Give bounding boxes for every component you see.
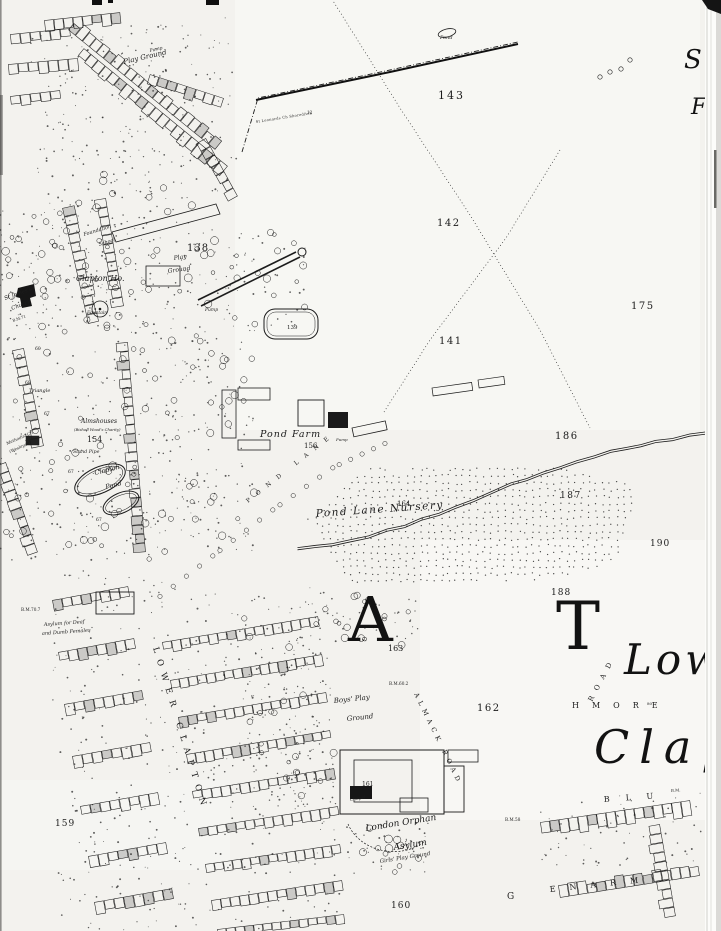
- stipple-dot: [80, 690, 82, 692]
- stipple-dot: [617, 815, 619, 817]
- nursery-dot: [357, 560, 358, 561]
- nursery-dot: [512, 489, 513, 490]
- nursery-dot: [553, 573, 554, 574]
- stipple-dot: [215, 485, 217, 487]
- stipple-dot: [414, 610, 415, 611]
- nursery-dot: [455, 491, 456, 492]
- nursery-dot: [485, 483, 486, 484]
- nursery-dot: [546, 567, 547, 568]
- spot-height-67a: 67: [44, 411, 50, 417]
- nursery-dot: [456, 484, 457, 485]
- stipple-dot: [40, 149, 42, 151]
- stipple-dot: [86, 514, 88, 516]
- nursery-dot: [406, 579, 407, 580]
- stipple-dot: [45, 288, 47, 290]
- stipple-dot: [121, 53, 122, 54]
- stipple-dot: [61, 227, 62, 228]
- nursery-dot: [384, 496, 385, 497]
- stipple-dot: [175, 282, 177, 284]
- stipple-dot: [52, 699, 53, 700]
- stipple-dot: [55, 667, 56, 668]
- stipple-dot: [241, 233, 242, 234]
- stipple-dot: [248, 325, 249, 326]
- stipple-dot: [290, 917, 291, 918]
- stipple-dot: [118, 266, 119, 267]
- nursery-dot: [604, 554, 605, 555]
- spot-height-80: 80: [647, 701, 653, 706]
- house: [135, 534, 144, 543]
- stipple-dot: [199, 680, 200, 681]
- stipple-dot: [333, 854, 335, 856]
- stipple-dot: [38, 172, 39, 173]
- stipple-dot: [191, 340, 192, 341]
- stipple-dot: [84, 685, 86, 687]
- stipple-dot: [282, 854, 283, 855]
- stipple-dot: [185, 327, 187, 329]
- nursery-dot: [602, 531, 603, 532]
- nursery-dot: [496, 503, 497, 504]
- stipple-dot: [105, 863, 106, 864]
- nursery-dot: [378, 546, 379, 547]
- stipple-dot: [332, 615, 333, 616]
- stipple-dot: [69, 878, 71, 880]
- stipple-dot: [541, 859, 542, 860]
- stipple-dot: [63, 114, 64, 115]
- stipple-dot: [320, 682, 321, 683]
- nursery-dot: [365, 519, 366, 520]
- stipple-dot: [296, 743, 298, 745]
- stipple-dot: [166, 404, 168, 406]
- nursery-dot: [358, 495, 359, 496]
- stipple-dot: [355, 833, 356, 834]
- stipple-dot: [135, 373, 137, 375]
- house: [77, 647, 88, 660]
- stipple-dot: [141, 239, 142, 240]
- stipple-dot: [179, 474, 180, 475]
- stipple-dot: [30, 557, 32, 559]
- stipple-dot: [26, 231, 28, 233]
- nursery-dot: [422, 469, 423, 470]
- stipple-dot: [190, 864, 191, 865]
- nursery-dot: [566, 525, 567, 526]
- nursery-dot: [400, 581, 401, 582]
- stipple-dot: [12, 301, 13, 302]
- stipple-dot: [571, 815, 572, 816]
- nursery-dot: [448, 482, 449, 483]
- nursery-dot: [364, 580, 365, 581]
- stipple-dot: [253, 748, 254, 749]
- stipple-dot: [312, 603, 313, 604]
- stipple-dot: [230, 643, 232, 645]
- stipple-dot: [10, 291, 11, 292]
- stipple-dot: [317, 853, 318, 854]
- nursery-dot: [461, 490, 462, 491]
- stipple-dot: [48, 423, 50, 425]
- nursery-dot: [553, 552, 554, 553]
- stipple-dot: [149, 241, 151, 243]
- stipple-dot: [243, 434, 245, 436]
- stipple-dot: [160, 717, 161, 718]
- stipple-dot: [279, 787, 281, 789]
- stipple-dot: [191, 64, 192, 65]
- nursery-dot: [545, 512, 546, 513]
- stipple-dot: [295, 808, 296, 809]
- nursery-dot: [595, 552, 596, 553]
- stipple-dot: [15, 253, 17, 255]
- spot-height-67b: 67: [68, 469, 74, 475]
- stipple-dot: [423, 862, 424, 863]
- nursery-dot: [590, 533, 591, 534]
- stipple-dot: [187, 35, 188, 36]
- stipple-dot: [135, 462, 136, 463]
- stipple-dot: [334, 829, 335, 830]
- nursery-dot: [365, 532, 366, 533]
- benchmark-58: B.M.58: [505, 817, 521, 822]
- stipple-dot: [39, 460, 41, 462]
- stipple-dot: [159, 287, 160, 288]
- nursery-dot: [401, 489, 402, 490]
- stipple-dot: [172, 887, 173, 888]
- nursery-dot: [554, 511, 555, 512]
- nursery-dot: [405, 531, 406, 532]
- stipple-dot: [299, 636, 301, 638]
- nursery-dot: [517, 476, 518, 477]
- stipple-dot: [154, 908, 155, 909]
- stipple-dot: [290, 872, 291, 873]
- stipple-dot: [213, 87, 214, 88]
- stipple-dot: [106, 301, 107, 302]
- nursery-dot: [420, 565, 421, 566]
- stipple-dot: [320, 652, 322, 654]
- stipple-dot: [195, 518, 196, 519]
- stipple-dot: [165, 26, 167, 28]
- house: [242, 667, 252, 678]
- stipple-dot: [197, 650, 199, 652]
- stipple-dot: [131, 33, 133, 35]
- nursery-dot: [421, 475, 422, 476]
- stipple-dot: [331, 797, 333, 799]
- nursery-dot: [553, 495, 554, 496]
- nursery-dot: [546, 532, 547, 533]
- stipple-dot: [124, 344, 125, 345]
- stipple-dot: [251, 600, 253, 602]
- stipple-dot: [139, 118, 141, 120]
- nursery-dot: [343, 559, 344, 560]
- nursery-dot: [371, 567, 372, 568]
- nursery-dot: [450, 538, 451, 539]
- nursery-dot: [573, 566, 574, 567]
- nursery-dot: [483, 476, 484, 477]
- stipple-dot: [146, 519, 147, 520]
- stipple-dot: [254, 330, 255, 331]
- stipple-dot: [160, 338, 162, 340]
- stipple-dot: [65, 82, 66, 83]
- nursery-dot: [485, 503, 486, 504]
- stipple-dot: [252, 697, 254, 699]
- nursery-dot: [505, 510, 506, 511]
- stipple-dot: [78, 471, 79, 472]
- stipple-dot: [229, 864, 231, 866]
- stipple-dot: [95, 351, 96, 352]
- nursery-dot: [477, 572, 478, 573]
- stipple-dot: [378, 837, 380, 839]
- nursery-dot: [464, 497, 465, 498]
- nursery-dot: [470, 573, 471, 574]
- stipple-dot: [159, 263, 160, 264]
- stipple-dot: [116, 605, 118, 607]
- stipple-dot: [235, 919, 236, 920]
- stipple-dot: [145, 704, 146, 705]
- stipple-dot: [176, 768, 178, 770]
- house: [124, 434, 136, 443]
- stipple-dot: [130, 537, 132, 539]
- nursery-dot: [392, 496, 393, 497]
- nursery-dot: [321, 532, 322, 533]
- nursery-dot: [580, 531, 581, 532]
- nursery-dot: [547, 495, 548, 496]
- nursery-dot: [435, 538, 436, 539]
- benchmark-602: B.M.60.2: [389, 681, 409, 686]
- stipple-dot: [268, 833, 270, 835]
- stipple-dot: [58, 627, 60, 629]
- stipple-dot: [102, 382, 104, 384]
- stipple-dot: [15, 483, 16, 484]
- stipple-dot: [150, 191, 152, 193]
- stipple-dot: [62, 137, 63, 138]
- stipple-dot: [207, 402, 208, 403]
- nursery-dot: [484, 561, 485, 562]
- stipple-dot: [155, 524, 156, 525]
- nursery-dot: [511, 572, 512, 573]
- nursery-dot: [532, 552, 533, 553]
- stipple-dot: [195, 74, 197, 76]
- stipple-dot: [222, 353, 223, 354]
- stipple-dot: [138, 664, 139, 665]
- nursery-dot: [608, 482, 609, 483]
- stipple-dot: [140, 354, 142, 356]
- nursery-dot: [622, 532, 623, 533]
- nursery-dot: [359, 490, 360, 491]
- stipple-dot: [140, 86, 141, 87]
- stipple-dot: [34, 556, 36, 558]
- stipple-dot: [129, 129, 130, 130]
- stipple-dot: [35, 337, 36, 338]
- stipple-dot: [78, 578, 79, 579]
- nursery-dot: [547, 554, 548, 555]
- stipple-dot: [66, 655, 67, 656]
- stipple-dot: [204, 359, 206, 361]
- nursery-dot: [469, 481, 470, 482]
- nursery-dot: [359, 572, 360, 573]
- stipple-dot: [163, 453, 165, 455]
- stipple-dot: [86, 248, 87, 249]
- stipple-dot: [252, 293, 254, 295]
- nursery-dot: [371, 552, 372, 553]
- stipple-dot: [88, 252, 89, 253]
- nursery-dot: [443, 554, 444, 555]
- stipple-dot: [107, 659, 108, 660]
- stipple-dot: [258, 758, 260, 760]
- stipple-dot: [87, 457, 88, 458]
- nursery-dot: [393, 567, 394, 568]
- stipple-dot: [25, 401, 26, 402]
- stipple-dot: [131, 240, 132, 241]
- stipple-dot: [75, 159, 76, 160]
- stipple-dot: [228, 305, 229, 306]
- stipple-dot: [49, 353, 51, 355]
- stipple-dot: [151, 60, 152, 61]
- nursery-dot: [476, 502, 477, 503]
- road-letters-rushmore: HMORE: [572, 701, 671, 710]
- stipple-dot: [251, 261, 252, 262]
- nursery-dot: [547, 488, 548, 489]
- nursery-dot: [568, 545, 569, 546]
- stipple-dot: [137, 131, 138, 132]
- stipple-dot: [151, 612, 152, 613]
- nursery-dot: [567, 531, 568, 532]
- stipple-dot: [108, 596, 109, 597]
- nursery-dot: [582, 566, 583, 567]
- stipple-dot: [217, 518, 218, 519]
- nursery-dot: [505, 495, 506, 496]
- nursery-dot: [484, 539, 485, 540]
- stipple-dot: [64, 408, 66, 410]
- stipple-dot: [304, 787, 305, 788]
- stipple-dot: [253, 719, 254, 720]
- stipple-dot: [106, 377, 108, 379]
- nursery-dot: [476, 468, 477, 469]
- stipple-dot: [299, 292, 301, 294]
- nursery-dot: [573, 546, 574, 547]
- parcel-163: 163: [388, 644, 403, 653]
- stipple-dot: [180, 904, 181, 905]
- stipple-dot: [227, 386, 228, 387]
- nursery-dot: [372, 525, 373, 526]
- stipple-dot: [143, 217, 145, 219]
- nursery-dot: [352, 580, 353, 581]
- stipple-dot: [173, 318, 174, 319]
- nursery-dot: [485, 574, 486, 575]
- stipple-dot: [309, 785, 311, 787]
- nursery-dot: [610, 524, 611, 525]
- nursery-dot: [433, 518, 434, 519]
- nursery-dot: [461, 484, 462, 485]
- stipple-dot: [291, 664, 293, 666]
- stipple-dot: [25, 427, 27, 429]
- stipple-dot: [312, 652, 314, 654]
- nursery-dot: [608, 553, 609, 554]
- house: [133, 691, 144, 701]
- stipple-dot: [117, 328, 119, 330]
- nursery-dot: [343, 498, 344, 499]
- stipple-dot: [353, 873, 354, 874]
- stipple-dot: [102, 37, 103, 38]
- stipple-dot: [90, 513, 91, 514]
- nursery-dot: [617, 489, 618, 490]
- stipple-dot: [187, 197, 188, 198]
- stipple-dot: [252, 238, 253, 239]
- stipple-dot: [120, 474, 121, 475]
- nursery-dot: [342, 532, 343, 533]
- stipple-dot: [130, 391, 131, 392]
- stipple-dot: [64, 222, 66, 224]
- nursery-dot: [617, 540, 618, 541]
- stipple-dot: [241, 448, 243, 450]
- stipple-dot: [176, 752, 177, 753]
- stipple-dot: [158, 592, 159, 593]
- stipple-dot: [134, 228, 135, 229]
- stipple-dot: [157, 520, 159, 522]
- stipple-dot: [17, 261, 19, 263]
- stipple-dot: [283, 688, 285, 690]
- benchmark-707: B.M.70.7: [21, 607, 41, 612]
- nursery-dot: [560, 509, 561, 510]
- nursery-dot: [630, 510, 631, 511]
- stipple-dot: [75, 544, 77, 546]
- stipple-dot: [145, 175, 146, 176]
- stipple-dot: [143, 321, 144, 322]
- label-boundary-12: 12: [307, 110, 313, 115]
- stipple-dot: [124, 553, 125, 554]
- stipple-dot: [138, 628, 139, 629]
- stipple-dot: [325, 684, 326, 685]
- stipple-dot: [182, 360, 183, 361]
- stipple-dot: [68, 706, 69, 707]
- stipple-dot: [284, 675, 285, 676]
- scan-mark-top-3: [206, 0, 219, 5]
- nursery-dot: [533, 524, 534, 525]
- stipple-dot: [253, 695, 254, 696]
- stipple-dot: [36, 229, 37, 230]
- stipple-dot: [145, 734, 146, 735]
- nursery-dot: [594, 489, 595, 490]
- stipple-dot: [44, 212, 45, 213]
- house: [303, 734, 312, 742]
- stipple-dot: [184, 361, 185, 362]
- stipple-dot: [106, 558, 107, 559]
- stipple-dot: [145, 405, 147, 407]
- nursery-dot: [470, 503, 471, 504]
- stipple-dot: [228, 43, 229, 44]
- stipple-dot: [229, 247, 230, 248]
- stipple-dot: [32, 252, 34, 254]
- nursery-dot: [518, 552, 519, 553]
- nursery-dot: [350, 530, 351, 531]
- stipple-dot: [263, 597, 265, 599]
- stipple-dot: [41, 398, 43, 400]
- stipple-dot: [330, 688, 331, 689]
- stipple-dot: [207, 473, 208, 474]
- nursery-dot: [422, 538, 423, 539]
- stipple-dot: [89, 307, 90, 308]
- stipple-dot: [86, 526, 87, 527]
- stipple-dot: [74, 277, 75, 278]
- stipple-dot: [69, 265, 71, 267]
- stipple-dot: [182, 848, 183, 849]
- nursery-dot: [475, 475, 476, 476]
- spot-height-60: 60: [35, 346, 41, 352]
- nursery-dot: [547, 476, 548, 477]
- nursery-dot: [604, 495, 605, 496]
- stipple-dot: [203, 233, 204, 234]
- stipple-dot: [220, 78, 222, 80]
- stipple-dot: [581, 802, 583, 804]
- stipple-dot: [161, 606, 162, 607]
- district-name-clapton: Clap: [594, 720, 721, 774]
- nursery-dot: [512, 560, 513, 561]
- nursery-dot: [518, 505, 519, 506]
- stipple-dot: [119, 434, 121, 436]
